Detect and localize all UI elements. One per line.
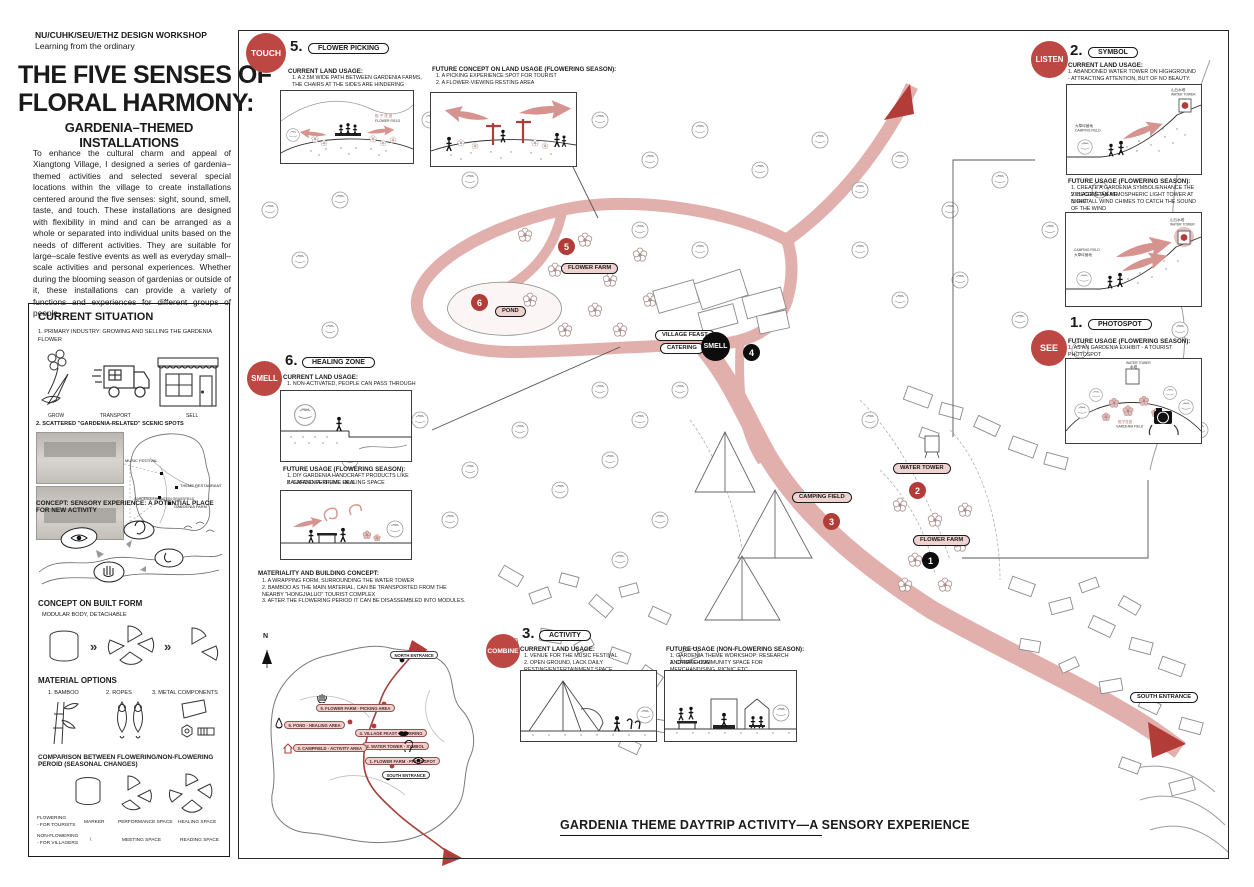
map-title: GARDENIA THEME DAYTRIP ACTIVITY—A SENSOR…	[560, 818, 822, 836]
listen-sense-badge: LISTEN	[1031, 41, 1068, 78]
ear-icon	[403, 740, 413, 752]
listen-current-1: 1. ABANDONED WATER TOWER ON HIGHGROUND -…	[1068, 69, 1198, 84]
smell-current-heading: CURRENT LAND USAGE:	[283, 374, 358, 381]
map-pill-water-tower: WATER TOWER	[893, 463, 951, 474]
listen2-camp-en: CAMPING FIELD	[1074, 248, 1100, 252]
modular-form-diagram: »»	[36, 620, 222, 676]
touch-number: 5.	[290, 38, 303, 55]
smell-current-1: 1. NON-ACTIVATED, PEOPLE CAN PASS THROUG…	[287, 381, 416, 388]
see-number: 1.	[1070, 314, 1083, 331]
touch-future-sketch	[430, 92, 577, 167]
cmp-row2-cell-2: MEETING SPACE	[122, 838, 161, 843]
material-options-heading: MATERIAL OPTIONS	[38, 676, 117, 685]
touch-tag-pill: FLOWER PICKING	[308, 43, 389, 54]
touch-sketch-label-cn: 栀 子 花 田	[375, 113, 393, 118]
cmp-row1-cell-2: PERFORMANCE SPACE	[118, 820, 173, 825]
eye-icon	[412, 756, 425, 765]
see-field-en: GARDENIA FIELD	[1116, 425, 1144, 429]
materiality-heading: MATERIALITY AND BUILDING CONCEPT:	[258, 570, 379, 577]
cmp-row2-label-1: NON-FLOWERING	[37, 834, 78, 839]
see-sense-badge: SEE	[1031, 330, 1067, 366]
smell-future-2: 2. GARDENIA-THEME HEALING SPACE	[287, 480, 422, 487]
map-marker-2: 2	[909, 482, 926, 499]
workshop-tagline: Learning from the ordinary	[35, 41, 135, 51]
svg-text:»: »	[164, 639, 171, 654]
lips-icon	[397, 729, 410, 738]
poster-title-line1: THE FIVE SENSES OF	[18, 62, 240, 90]
listen-camp-cn: 大草坪营地	[1075, 123, 1093, 128]
cmp-row1-cell-1: MARKER	[84, 820, 105, 825]
see-future-heading: FUTURE USAGE (FLOWERING SEASON):	[1068, 338, 1190, 345]
workshop-name: NU/CUHK/SEU/ETHZ DESIGN WORKSHOP	[35, 30, 207, 40]
materiality-item-3: 3. AFTER THE FLOWERING PERIOD IT CAN BE …	[262, 598, 477, 605]
poster-board: NU/CUHK/SEU/ETHZ DESIGN WORKSHOP Learnin…	[0, 0, 1254, 887]
listen-tower-cn: 山丘水塔	[1171, 87, 1186, 92]
sensory-concept-sketch	[34, 510, 224, 594]
map-pill-flower-farm-top: FLOWER FARM	[561, 263, 618, 274]
cmp-row2-cell-1: \	[90, 838, 91, 843]
keymap-pill-water-tower-symbol: 2. WATER TOWER - SYMBOL	[362, 742, 429, 750]
grow-label: GROW	[48, 413, 64, 419]
cmp-row2-cell-3: READING SPACE	[180, 838, 219, 843]
map-pill-flower-farm-bottom: FLOWER FARM	[913, 535, 970, 546]
combine-future-heading: FUTURE USAGE (NON-FLOWERING SEASON):	[666, 646, 804, 653]
listen-camp-en: CAMPING FIELD	[1075, 129, 1101, 133]
combine-number: 3.	[522, 625, 535, 642]
map-pill-catering: CATERING	[660, 343, 704, 354]
keymap-pill-campfield-activity: 3. CAMPFIELD - ACTIVITY AREA	[293, 744, 367, 752]
map-marker-1: 1	[922, 552, 939, 569]
touch-sketch-label-en: FLOWER FIELD	[375, 119, 401, 123]
see-future-sketch: WATER TOWER 水塔 栀子花田 GARDENIA FIELD	[1065, 358, 1202, 444]
listen2-tower-en: WATER TOWER	[1170, 223, 1195, 227]
touch-future-heading: FUTURE CONCEPT ON LAND USAGE (FLOWERING …	[432, 66, 616, 73]
listen2-camp-cn: 大草坪营地	[1074, 252, 1092, 257]
see-field-cn: 栀子花田	[1118, 419, 1133, 424]
poster-title-line2: FLORAL HARMONY:	[18, 90, 240, 118]
listen-tower-en: WATER TOWER	[1171, 93, 1196, 97]
storefront-icon	[156, 352, 220, 410]
smell-sense-badge: SMELL	[247, 361, 282, 396]
map-marker-6: 6	[471, 294, 488, 311]
smell-current-sketch	[280, 390, 412, 462]
nose-icon	[274, 717, 285, 729]
see-tag-pill: PHOTOSPOT	[1088, 319, 1152, 330]
intro-paragraph: To enhance the cultural charm and appeal…	[33, 148, 231, 320]
grow-icon	[38, 348, 82, 410]
map-pill-camping-field: CAMPING FIELD	[792, 492, 852, 503]
material-3-label: 3. METAL COMPONENTS	[152, 690, 218, 698]
touch-sense-badge: TOUCH	[246, 33, 286, 73]
see-tower-cn: 水塔	[1130, 364, 1138, 369]
truck-icon	[92, 358, 152, 406]
listen2-tower-cn: 山丘水塔	[1170, 217, 1185, 222]
smell-future-heading: FUTURE USAGE (FLOWERING SEASON):	[283, 466, 405, 473]
sell-label: SELL	[186, 413, 198, 419]
touch-current-heading: CURRENT LAND USAGE:	[288, 68, 363, 75]
poster-subtitle: GARDENIA–THEMED INSTALLATIONS	[18, 120, 240, 150]
material-icons	[36, 698, 222, 750]
situation-item-1: 1. PRIMARY INDUSTRY: GROWING AND SELLING…	[38, 329, 218, 344]
combine-sense-badge: COMBINE	[486, 634, 520, 668]
map-pill-south-entrance: SOUTH ENTRANCE	[1130, 692, 1198, 703]
cmp-row1-label-1: FLOWERING	[37, 816, 66, 821]
listen-current-sketch: 山丘水塔 WATER TOWER 大草坪营地 CAMPING FIELD	[1066, 84, 1202, 175]
minimap-label-music-festival: MUSIC FESTIVAL	[125, 458, 158, 463]
smell-future-sketch	[280, 490, 412, 560]
map-pill-pond: POND	[495, 306, 526, 317]
map-marker-5: 5	[558, 238, 575, 255]
house-icon	[283, 743, 293, 754]
listen-tag-pill: SYMBOL	[1088, 47, 1138, 58]
combine-tag-pill: ACTIVITY	[539, 630, 591, 641]
touch-current-sketch: 栀 子 花 田 FLOWER FIELD	[280, 90, 414, 164]
keymap-pill-south-entrance: SOUTH ENTRANCE	[382, 771, 430, 779]
keymap-north-label: N	[263, 633, 268, 640]
keymap-pill-pond-healing: 6. POND - HEALING AREA	[284, 721, 345, 729]
cmp-row2-label-2: - FOR VILLAGERS	[37, 841, 78, 846]
cmp-row1-cell-3: HEALING SPACE	[178, 820, 216, 825]
listen-number: 2.	[1070, 42, 1083, 59]
keymap-pill-flower-farm-picking: 5. FLOWER FARM - PICKING AREA	[316, 704, 395, 712]
map-marker-3: 3	[823, 513, 840, 530]
material-2-label: 2. ROPES	[106, 690, 132, 698]
built-form-sub: MODULAR BODY, DETACHABLE	[42, 612, 127, 620]
material-1-label: 1. BAMBOO	[48, 690, 79, 698]
listen-future-heading: FUTURE USAGE (FLOWERING SEASON):	[1068, 178, 1190, 185]
combine-current-heading: CURRENT LAND USAGE:	[520, 646, 595, 653]
combine-current-sketch	[520, 670, 657, 742]
map-marker-4: 4	[743, 344, 760, 361]
combine-future-sketch	[664, 670, 797, 742]
svg-text:»: »	[90, 639, 97, 654]
map-marker-smell: SMELL	[701, 332, 730, 361]
keymap-pill-north-entrance: NORTH ENTRANCE	[390, 651, 438, 659]
comparison-shape-icons	[58, 772, 226, 816]
listen-current-heading: CURRENT LAND USAGE:	[1068, 62, 1143, 69]
minimap-label-theme-restaurant: THEME RESTAURANT	[180, 483, 222, 488]
hand-icon	[316, 692, 328, 703]
touch-future-2: 2. A FLOWER-VIEWING RESTING AREA	[436, 80, 534, 87]
comparison-heading: COMPARISON BETWEEN FLOWERING/NON-FLOWERI…	[38, 754, 218, 768]
smell-tag-pill: HEALING ZONE	[302, 357, 375, 368]
keymap-pill-village-feast-catering: 4. VILLAGE FEAST - CATERING	[355, 729, 427, 737]
smell-number: 6.	[285, 352, 298, 369]
listen-future-sketch: CAMPING FIELD 大草坪营地 山丘水塔 WATER TOWER	[1065, 212, 1202, 307]
keymap-pill-flower-farm-photospot: 1. FLOWER FARM - PHOTOSPOT	[365, 757, 440, 765]
built-form-heading: CONCEPT ON BUILT FORM	[38, 599, 142, 608]
current-situation-heading: CURRENT SITUATION	[38, 311, 153, 323]
cmp-row1-label-2: - FOR TOURISTS	[37, 823, 75, 828]
transport-label: TRANSPORT	[100, 413, 131, 419]
